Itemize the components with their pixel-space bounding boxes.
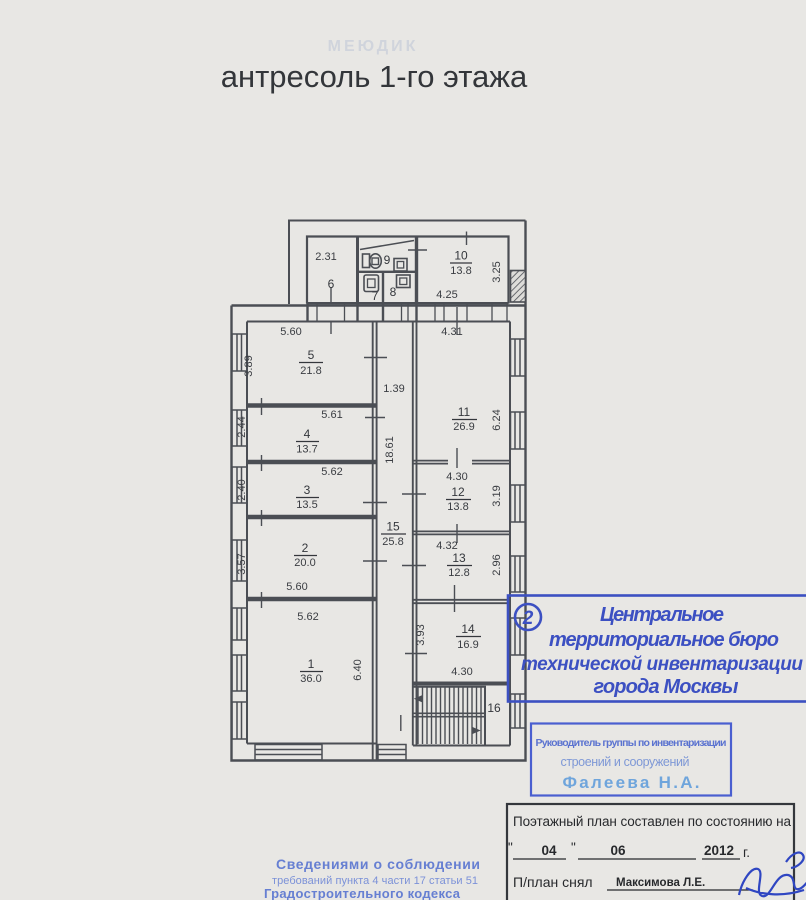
svg-text:13.7: 13.7 bbox=[296, 444, 317, 456]
svg-text:антресоль 1-го этажа: антресоль 1-го этажа bbox=[221, 59, 528, 94]
svg-text:3: 3 bbox=[304, 483, 311, 497]
svg-text:1.39: 1.39 bbox=[383, 383, 404, 395]
svg-text:6.24: 6.24 bbox=[491, 409, 503, 430]
svg-text:13.5: 13.5 bbox=[296, 499, 317, 511]
svg-text:2.40: 2.40 bbox=[236, 479, 248, 500]
svg-text:5.62: 5.62 bbox=[321, 466, 342, 478]
svg-text:Поэтажный план составлен по со: Поэтажный план составлен по состоянию на bbox=[513, 814, 791, 829]
svg-text:": " bbox=[571, 840, 576, 855]
svg-text:2: 2 bbox=[522, 608, 534, 629]
svg-text:15: 15 bbox=[386, 520, 400, 534]
svg-text:3.93: 3.93 bbox=[415, 624, 427, 645]
svg-text:3.25: 3.25 bbox=[491, 261, 503, 282]
svg-text:04: 04 bbox=[541, 843, 557, 858]
svg-text:20.0: 20.0 bbox=[294, 557, 315, 569]
svg-text:7: 7 bbox=[372, 289, 379, 303]
svg-text:11: 11 bbox=[458, 405, 471, 419]
svg-text:Сведениями о соблюдении: Сведениями о соблюдении bbox=[276, 856, 480, 872]
svg-text:13.8: 13.8 bbox=[447, 501, 468, 513]
svg-text:5.61: 5.61 bbox=[321, 409, 342, 421]
svg-text:4: 4 bbox=[304, 427, 311, 441]
svg-text:2: 2 bbox=[302, 541, 309, 555]
svg-text:строений и сооружений: строений и сооружений bbox=[561, 755, 690, 769]
svg-text:2.31: 2.31 bbox=[315, 251, 336, 263]
svg-text:36.0: 36.0 bbox=[300, 673, 321, 685]
svg-text:10: 10 bbox=[454, 249, 468, 263]
svg-text:12.8: 12.8 bbox=[448, 567, 469, 579]
svg-text:14: 14 bbox=[461, 622, 475, 636]
svg-text:16: 16 bbox=[487, 701, 501, 715]
svg-text:4.30: 4.30 bbox=[446, 471, 467, 483]
svg-text:": " bbox=[508, 840, 513, 855]
svg-text:1: 1 bbox=[308, 657, 315, 671]
svg-text:13.8: 13.8 bbox=[450, 265, 471, 277]
svg-text:города Москвы: города Москвы bbox=[594, 676, 739, 698]
svg-text:9: 9 bbox=[384, 253, 391, 267]
svg-text:16.9: 16.9 bbox=[457, 639, 478, 651]
svg-text:18.61: 18.61 bbox=[384, 436, 396, 464]
svg-text:12: 12 bbox=[451, 485, 465, 499]
svg-text:5.60: 5.60 bbox=[280, 326, 301, 338]
svg-text:4.25: 4.25 bbox=[436, 289, 457, 301]
svg-text:6.40: 6.40 bbox=[352, 659, 364, 680]
svg-text:5: 5 bbox=[308, 348, 315, 362]
svg-text:МЕЮДИК: МЕЮДИК bbox=[328, 38, 419, 55]
svg-text:Руководитель группы по инвента: Руководитель группы по инвентаризации bbox=[536, 737, 727, 749]
svg-text:25.8: 25.8 bbox=[382, 536, 403, 548]
svg-text:2.96: 2.96 bbox=[491, 554, 503, 575]
svg-text:3.57: 3.57 bbox=[236, 553, 248, 574]
svg-text:2012: 2012 bbox=[704, 843, 734, 858]
svg-text:06: 06 bbox=[610, 843, 626, 858]
svg-text:Центральное: Центральное bbox=[600, 604, 724, 626]
svg-text:4.31: 4.31 bbox=[441, 326, 462, 338]
svg-text:26.9: 26.9 bbox=[453, 421, 474, 433]
svg-text:Градостроительного кодекса: Градостроительного кодекса bbox=[264, 886, 461, 900]
svg-text:2.44: 2.44 bbox=[236, 416, 248, 437]
svg-text:21.8: 21.8 bbox=[300, 365, 321, 377]
svg-text:технической инвентаризации: технической инвентаризации bbox=[521, 654, 803, 675]
svg-text:3.89: 3.89 bbox=[243, 355, 255, 376]
svg-text:г.: г. bbox=[743, 845, 750, 860]
svg-text:8: 8 bbox=[390, 285, 397, 299]
svg-text:13: 13 bbox=[452, 551, 466, 565]
svg-text:5.60: 5.60 bbox=[286, 581, 307, 593]
svg-text:Максимова Л.Е.: Максимова Л.Е. bbox=[616, 877, 705, 889]
svg-text:6: 6 bbox=[328, 277, 335, 291]
svg-text:территориальное бюро: территориальное бюро bbox=[549, 629, 779, 651]
svg-text:5.62: 5.62 bbox=[297, 611, 318, 623]
svg-text:4.30: 4.30 bbox=[451, 666, 472, 678]
svg-text:П/план снял: П/план снял bbox=[513, 874, 593, 890]
svg-text:3.19: 3.19 bbox=[491, 485, 503, 506]
